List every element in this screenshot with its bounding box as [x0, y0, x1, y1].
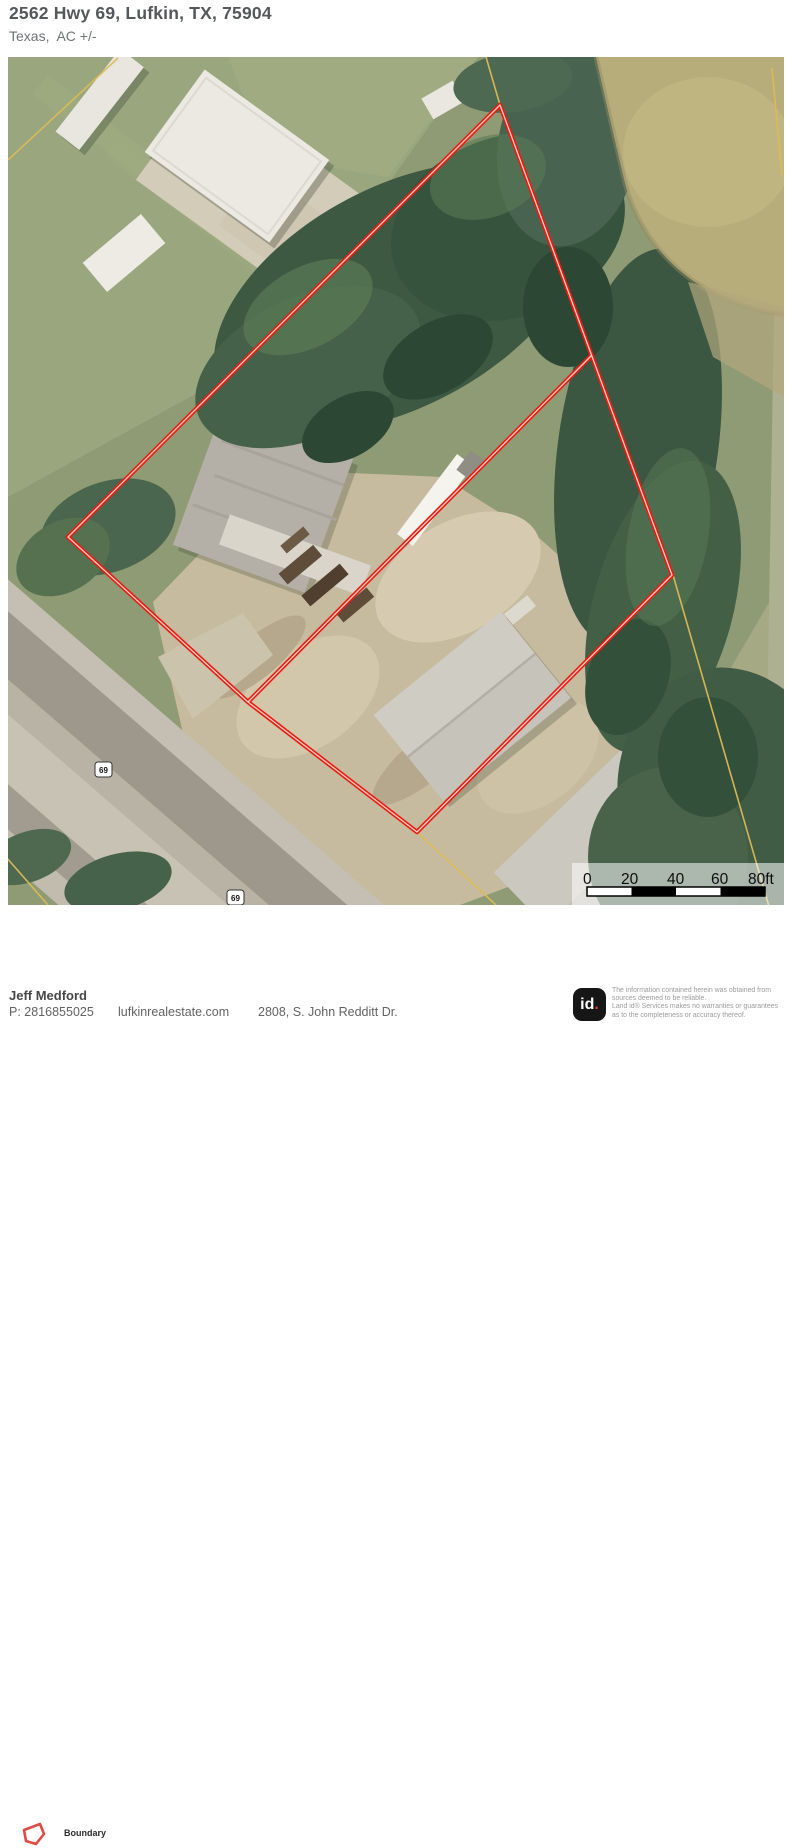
map-canvas[interactable]: 0 20 40 60 80ft 69 69 [8, 57, 784, 905]
agent-phone: P: 2816855025 [9, 1005, 94, 1019]
page-subtitle: Texas, AC +/- [9, 28, 272, 44]
scale-label: 0 [583, 871, 592, 888]
scale-label: 40 [667, 871, 685, 888]
legend-boundary-label: Boundary [64, 1828, 106, 1838]
logo-text: id [580, 996, 594, 1014]
agent-name: Jeff Medford [9, 988, 87, 1003]
scale-label: 80ft [748, 871, 775, 888]
agent-address: 2808, S. John Redditt Dr. [258, 1005, 398, 1019]
route-shield-label: 69 [231, 894, 240, 903]
disclaimer-line: as to the completeness or accuracy there… [612, 1012, 787, 1020]
logo-dot: . [594, 996, 598, 1014]
property-map-report: { "header": { "title": "2562 Hwy 69, Luf… [0, 0, 792, 1024]
boundary-polygon-icon [20, 1821, 47, 1848]
report-header: 2562 Hwy 69, Lufkin, TX, 75904 Texas, AC… [9, 3, 272, 44]
route-shield-label: 69 [99, 766, 108, 775]
scale-label: 60 [711, 871, 729, 888]
map-legend: Boundary [0, 908, 792, 950]
agent-website-link[interactable]: lufkinrealestate.com [118, 1005, 229, 1019]
map-scale-bar: 0 20 40 60 80ft [572, 863, 784, 905]
disclaimer-text: The information contained herein was obt… [612, 987, 787, 1020]
land-id-logo: id. [573, 988, 606, 1021]
disclaimer-line: The information contained herein was obt… [612, 987, 787, 995]
scale-label: 20 [621, 871, 639, 888]
page-title: 2562 Hwy 69, Lufkin, TX, 75904 [9, 3, 272, 24]
disclaimer-line: Land id® Services makes no warranties or… [612, 1003, 787, 1011]
